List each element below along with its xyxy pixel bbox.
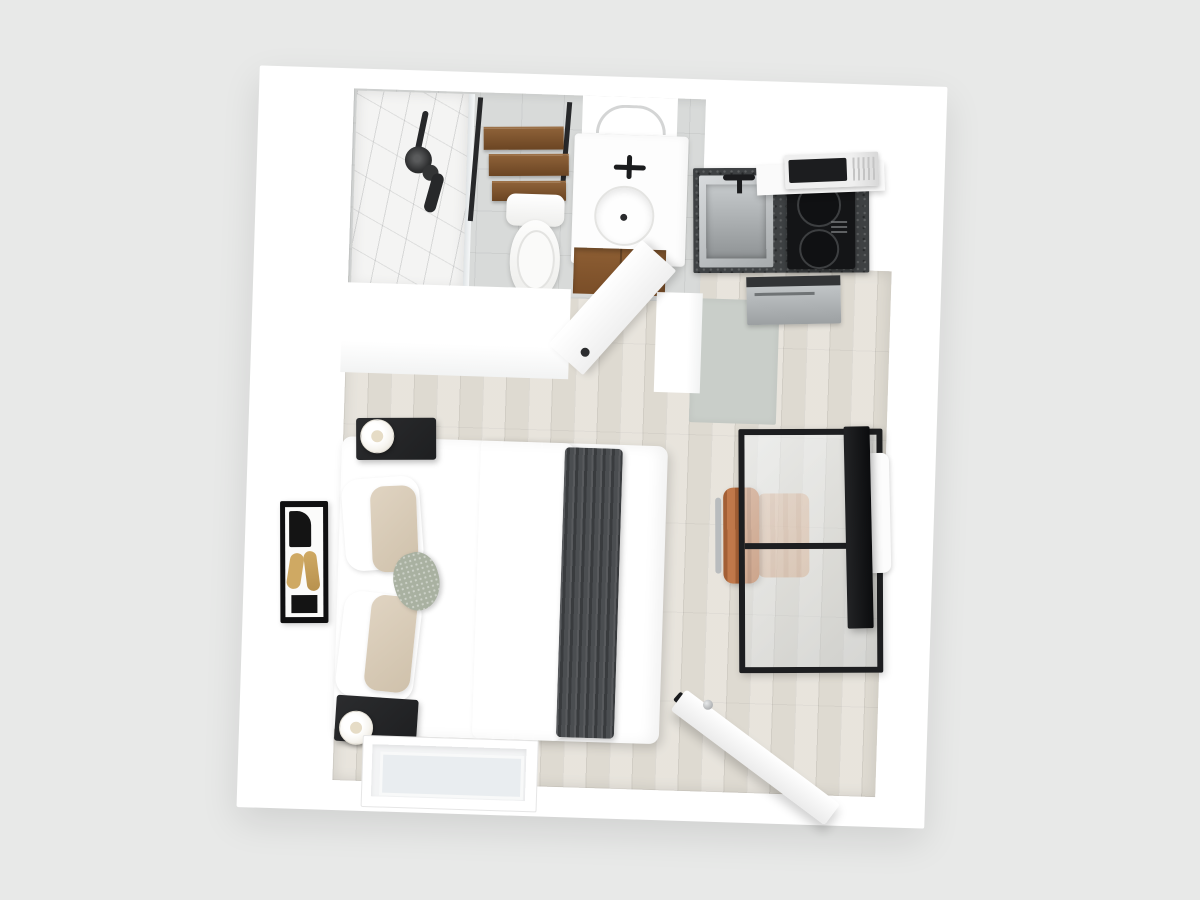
art-shape-gold: [286, 552, 305, 590]
lamp-base: [371, 430, 383, 442]
vanity-faucet-handle: [614, 165, 646, 171]
microwave-door: [788, 158, 847, 183]
door-handle: [579, 346, 592, 359]
screenshot-canvas: { "meta": { "type": "3d-floor-plan-rende…: [0, 0, 1200, 900]
under-counter-appliance: [746, 275, 841, 325]
wall-art: [280, 501, 328, 623]
art-shape-black: [289, 511, 311, 547]
window: [361, 735, 539, 812]
vanity-niche: [582, 96, 678, 137]
walk-in-shower: [351, 90, 469, 289]
cooktop-controls: [831, 219, 847, 233]
vanity-sink: [593, 185, 655, 247]
toilet-seat: [516, 230, 556, 291]
art-panel: [285, 507, 323, 617]
shelf-board: [484, 127, 564, 150]
appliance-top-edge: [746, 275, 840, 287]
shelf-board: [489, 154, 569, 176]
tv: [843, 426, 873, 629]
lamp-base: [350, 722, 362, 734]
window-glass: [379, 752, 524, 801]
microwave: [784, 152, 879, 190]
vanity: [571, 133, 689, 267]
art-shape-black: [291, 595, 317, 613]
niche-arc: [596, 104, 667, 135]
charcoal-throw-blanket: [556, 447, 623, 739]
kitchen-faucet: [737, 179, 742, 193]
entry-wall-pillar: [654, 292, 703, 393]
art-shape-gold: [303, 550, 321, 591]
bathroom-south-wall: [340, 282, 571, 379]
appliance-handle: [755, 292, 815, 296]
cooktop-burner: [799, 229, 839, 269]
sink-drain: [620, 214, 627, 221]
floor-plan: [237, 65, 948, 828]
microwave-vent: [852, 157, 875, 181]
kitchen-faucet-spout: [723, 174, 755, 180]
chair-armrest: [715, 498, 721, 574]
